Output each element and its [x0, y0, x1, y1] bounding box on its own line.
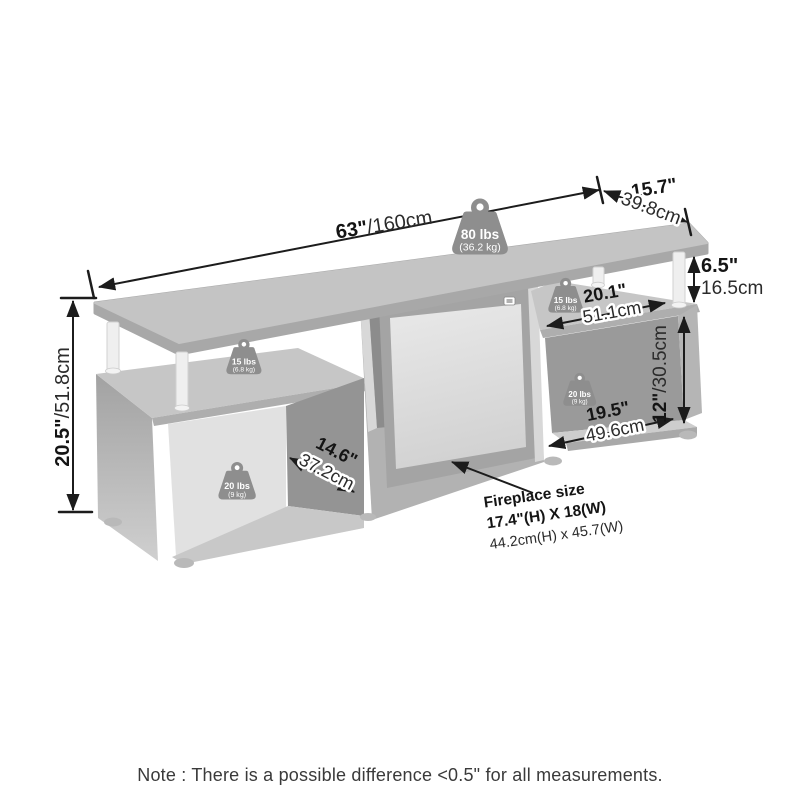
weight-lbs-label: 15 lbs	[554, 295, 578, 305]
weight-kg-label: (6.8 kg)	[233, 367, 255, 374]
weight-knob-hole	[242, 342, 247, 347]
product-dimension-diagram: 80 lbs (36.2 kg) 15 lbs (6.8 kg) 15 lbs …	[0, 0, 800, 800]
post-left-front-cap	[175, 405, 190, 411]
post-left-back-cap	[106, 368, 121, 374]
weight-knob-hole	[476, 203, 483, 210]
post-right-front	[673, 252, 685, 306]
weight-lbs-label: 80 lbs	[461, 227, 499, 242]
dim-topgap-cm: 16.5cm	[701, 278, 763, 299]
post-left-back	[107, 322, 119, 372]
dim-rheight-label: 12"/30.5cm	[650, 325, 671, 423]
dim-height-label: 20.5"/51.8cm	[52, 347, 74, 467]
weight-lbs-label: 15 lbs	[232, 356, 256, 366]
foot	[360, 513, 376, 521]
measurement-note: Note : There is a possible difference <0…	[137, 765, 663, 785]
weight-knob-hole	[578, 376, 582, 380]
weight-kg-label: (9 kg)	[228, 492, 246, 499]
weight-lbs-label: 20 lbs	[224, 481, 250, 491]
dim-topgap-inches: 6.5"	[701, 255, 738, 277]
weight-kg-label: (36.2 kg)	[459, 242, 500, 254]
post-left-front	[176, 352, 188, 409]
tv-stand-diagram-canvas: 80 lbs (36.2 kg) 15 lbs (6.8 kg) 15 lbs …	[0, 0, 800, 800]
weight-kg-label: (6.8 kg)	[555, 305, 577, 312]
weight-lbs-label: 20 lbs	[568, 390, 591, 399]
foot	[174, 558, 194, 568]
fireplace-control-display	[504, 297, 515, 305]
post-right-front-cap	[672, 302, 687, 308]
fireplace-screen	[390, 304, 526, 469]
weight-knob-hole	[563, 281, 567, 285]
foot	[544, 457, 562, 466]
weight-knob-hole	[235, 465, 240, 470]
foot	[679, 431, 697, 440]
foot	[104, 518, 122, 527]
